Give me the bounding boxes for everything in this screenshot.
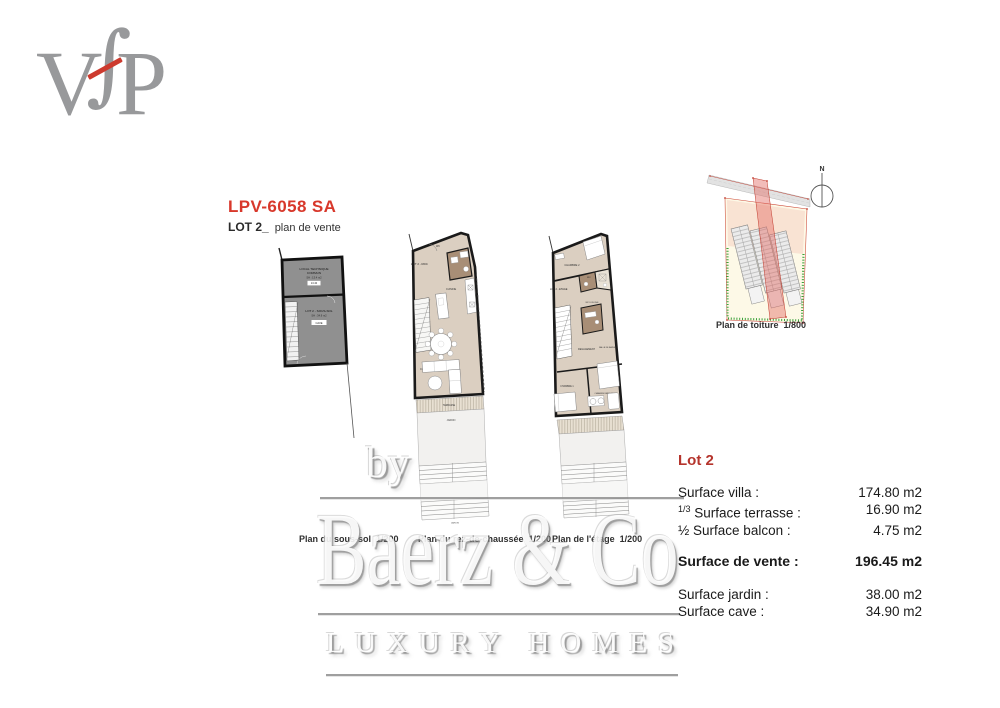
lot-number: LOT 2_ <box>228 220 269 234</box>
room-label: WC <box>436 245 440 248</box>
fraction-prefix: ½ <box>678 523 689 538</box>
coffee-table <box>428 376 442 390</box>
bed <box>554 392 577 412</box>
fraction-prefix: 1/3 <box>678 504 691 514</box>
table-row: 1/3 Surface terrasse : 16.90 m2 <box>678 501 922 522</box>
watermark-tagline: LUXURY HOMES <box>326 629 685 658</box>
row-label: ½ Surface balcon : <box>678 522 791 539</box>
vfp-logo: V ∫ P <box>30 14 200 134</box>
room-label: COMMUN <box>307 271 321 275</box>
plan-etage: CHAMBRE 2 WC LOT 2 - ETAGE WC DOUCHE SAL… <box>541 224 663 524</box>
row-value: 16.90 m2 <box>866 501 922 522</box>
terrace-label: TERRASSE <box>443 404 456 407</box>
plan-toiture: N <box>697 160 847 328</box>
row-value: 34.90 m2 <box>866 603 922 620</box>
watermark-by: by <box>366 441 410 485</box>
room-label: CHAMBRE 2 <box>564 263 580 267</box>
watermark-rule-middle <box>318 613 680 616</box>
north-arrow-icon: N <box>811 166 833 208</box>
shower-room <box>581 304 603 334</box>
surface-table-title: Lot 2 <box>678 452 922 469</box>
row-label: 1/3 Surface terrasse : <box>678 501 801 522</box>
row-label-text: Surface terrasse : <box>694 506 801 521</box>
lot-subtitle: LOT 2_plan de vente <box>228 220 341 234</box>
row-label-text: Surface balcon : <box>693 523 791 538</box>
row-label: Surface villa : <box>678 484 759 501</box>
logo-letter-p: P <box>116 37 167 129</box>
room-label: WC DOUCHE <box>585 302 599 304</box>
room-chip: 13.40 <box>311 282 318 285</box>
table-row: Surface villa : 174.80 m2 <box>678 484 922 501</box>
row-value: 4.75 m2 <box>873 522 922 539</box>
svg-text:N: N <box>819 166 824 173</box>
lot-label: LOT 2 - RDC <box>411 262 428 266</box>
row-value: 174.80 m2 <box>858 484 922 501</box>
room-label: CHAMBRE 1 <box>560 385 574 388</box>
table-row: Surface cave : 34.90 m2 <box>678 603 922 620</box>
table-row: ½ Surface balcon : 4.75 m2 <box>678 522 922 539</box>
page: V ∫ P LPV-6058 SA LOT 2_plan de vente LO… <box>0 0 1000 708</box>
plan-rez-de-chaussee: WC LOT 2 - RDC CUISINE COIN A MANGER - S… <box>402 224 520 524</box>
wc-room <box>447 248 472 280</box>
wc-room <box>579 272 597 292</box>
room-label: SALLE DE BAINS <box>599 346 616 349</box>
row-label: Surface jardin : <box>678 586 769 603</box>
watermark-rule-bottom <box>326 674 678 677</box>
table-row-total: Surface de vente : 196.45 m2 <box>678 553 922 570</box>
room-area: SH : 34.9 m2 <box>311 314 327 318</box>
row-value: 196.45 m2 <box>855 553 922 570</box>
sink <box>590 399 596 405</box>
room-chip: CAVE <box>315 321 322 325</box>
room-label: WC <box>587 277 591 279</box>
row-value: 38.00 m2 <box>866 586 922 603</box>
plan-sous-sol: LOCAL TECHNIQUE COMMUN SH : 13.4 m2 13.4… <box>266 246 358 441</box>
row-label: Surface cave : <box>678 603 764 620</box>
watermark-brand: Baerz & Co <box>316 498 679 602</box>
caption-toiture: Plan de toiture 1/800 <box>716 320 806 330</box>
room-label: CUISINE <box>446 288 456 291</box>
room-area: SH : 13.4 m2 <box>306 275 322 279</box>
lot-subtitle-text: plan de vente <box>275 222 341 234</box>
row-label: Surface de vente : <box>678 553 799 570</box>
surface-table: Lot 2 Surface villa : 174.80 m2 1/3 Surf… <box>678 452 922 620</box>
sink <box>598 398 604 404</box>
lot-label: LOT 2 - ETAGE <box>550 288 568 291</box>
garden-label: JARDIN <box>447 419 456 422</box>
table-row: Surface jardin : 38.00 m2 <box>678 586 922 603</box>
room-label: DEGAGEMENT <box>578 348 596 351</box>
room-label: LOT 2 - SOUS-SOL <box>305 309 333 313</box>
bathtub <box>607 393 619 410</box>
page-title: LPV-6058 SA <box>228 197 336 217</box>
